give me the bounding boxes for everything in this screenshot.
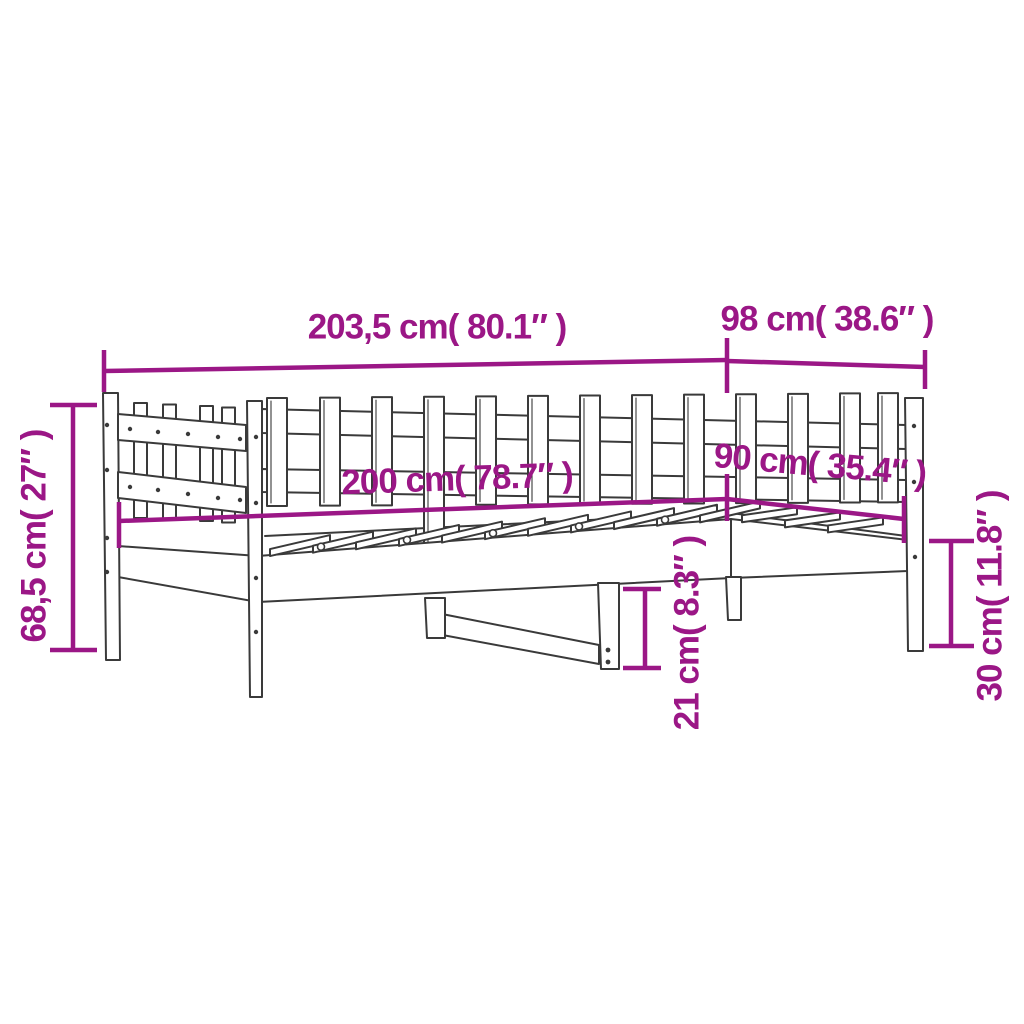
slat-peg bbox=[490, 530, 497, 537]
label-under-bed-clearance: 21 cm( 8.3″ ) bbox=[667, 536, 706, 730]
slat-peg bbox=[576, 523, 583, 530]
label-frame-side-height: 30 cm( 11.8″ ) bbox=[970, 491, 1009, 702]
fence-slat bbox=[320, 398, 340, 506]
dimension-diagram: 203,5 cm( 80.1″ ) 98 cm( 38.6″ ) 68,5 cm… bbox=[0, 0, 1024, 1024]
slat-peg bbox=[318, 543, 325, 550]
beam-bracket bbox=[425, 598, 445, 638]
background bbox=[0, 0, 1024, 1024]
screw bbox=[606, 660, 611, 665]
slat-peg bbox=[404, 536, 411, 543]
fence-slat bbox=[580, 395, 600, 504]
screw bbox=[606, 648, 611, 653]
fence-slat bbox=[267, 398, 287, 506]
slat-peg bbox=[662, 516, 669, 523]
right-leg bbox=[905, 398, 923, 651]
back-left-leg bbox=[247, 401, 262, 697]
label-inner-length: 200 cm( 78.7″ ) bbox=[341, 455, 574, 502]
center-front-leg bbox=[598, 583, 619, 669]
center-rear-leg bbox=[726, 577, 741, 620]
fence-slat bbox=[632, 395, 652, 504]
label-outer-depth: 98 cm( 38.6″ ) bbox=[721, 299, 934, 338]
fence-slat bbox=[684, 395, 704, 504]
label-total-height: 68,5 cm( 27″ ) bbox=[14, 430, 53, 643]
label-outer-length: 203,5 cm( 80.1″ ) bbox=[308, 307, 567, 346]
